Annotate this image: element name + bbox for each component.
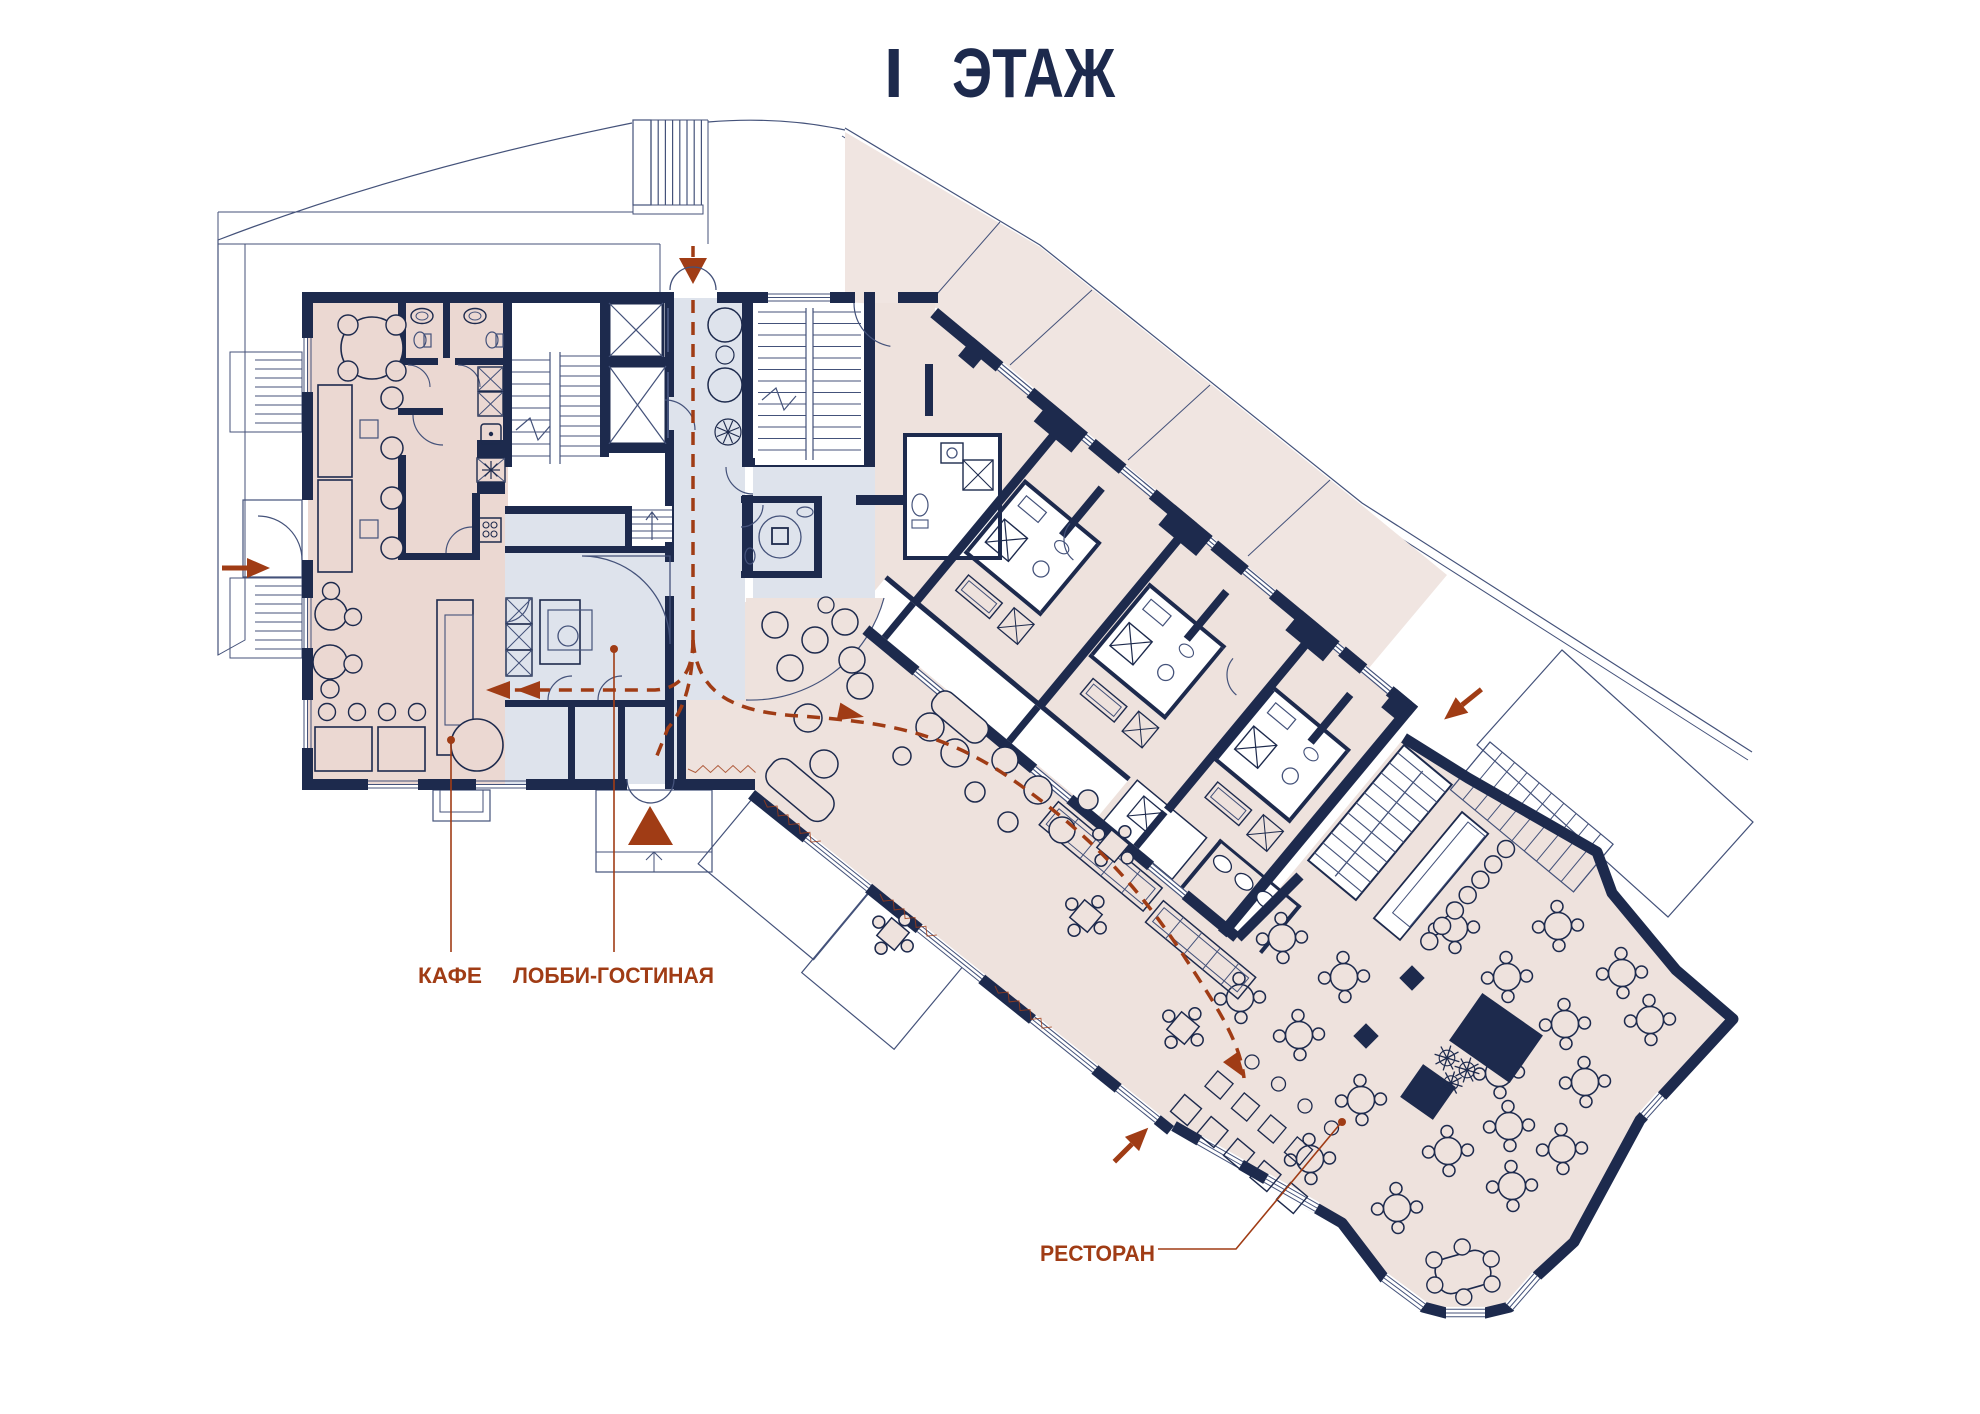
svg-text:ЛОББИ-ГОСТИНАЯ: ЛОББИ-ГОСТИНАЯ xyxy=(513,963,714,988)
svg-text:ЭТАЖ: ЭТАЖ xyxy=(952,34,1116,112)
svg-text:РЕСТОРАН: РЕСТОРАН xyxy=(1040,1241,1155,1266)
svg-text:КАФЕ: КАФЕ xyxy=(418,963,482,988)
svg-text:I: I xyxy=(884,34,903,112)
